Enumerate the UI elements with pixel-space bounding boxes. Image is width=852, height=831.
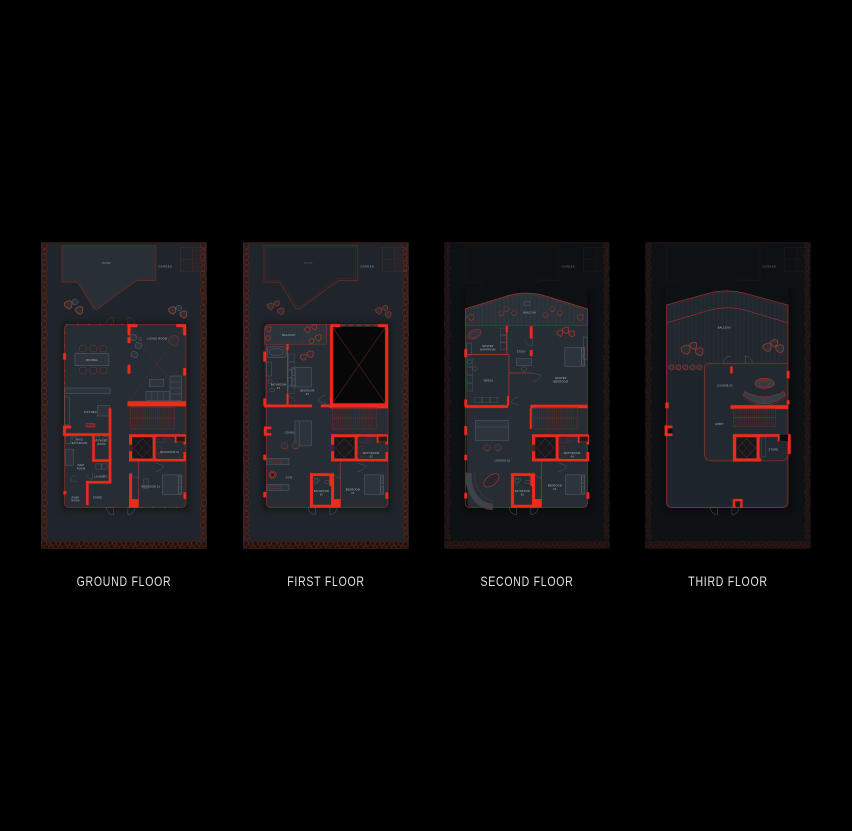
svg-text:05: 05 <box>320 495 324 497</box>
svg-text:04: 04 <box>571 456 575 459</box>
svg-text:KITCHEN: KITCHEN <box>84 411 97 414</box>
svg-text:LOUNGE 03: LOUNGE 03 <box>717 384 733 387</box>
svg-text:BEDROOM: BEDROOM <box>554 381 568 384</box>
svg-text:LAUNDRY: LAUNDRY <box>95 475 108 478</box>
svg-text:DINING: DINING <box>86 358 98 362</box>
svg-text:05: 05 <box>521 495 525 497</box>
svg-text:02: 02 <box>370 456 374 459</box>
svg-text:LOBBY: LOBBY <box>715 423 724 426</box>
svg-text:GYM: GYM <box>286 477 292 480</box>
svg-text:STUDY: STUDY <box>517 350 526 353</box>
svg-text:02: 02 <box>351 492 355 495</box>
svg-text:ROOM: ROOM <box>77 468 85 470</box>
svg-text:LOUNGE 02: LOUNGE 02 <box>495 459 511 462</box>
svg-text:03: 03 <box>306 393 310 396</box>
svg-text:POWDER: POWDER <box>96 441 108 443</box>
svg-text:STORE: STORE <box>93 497 102 499</box>
svg-text:GARDEN: GARDEN <box>562 265 576 269</box>
svg-text:BEDROOM 01: BEDROOM 01 <box>142 485 161 488</box>
svg-text:BATHROOM: BATHROOM <box>314 490 329 493</box>
svg-text:MASTER: MASTER <box>555 377 567 380</box>
svg-text:POOL: POOL <box>102 261 111 265</box>
svg-text:LIVING ROOM: LIVING ROOM <box>147 336 167 340</box>
svg-text:BALCONY: BALCONY <box>282 334 296 337</box>
svg-text:BATHROOM 01: BATHROOM 01 <box>160 451 179 454</box>
svg-text:BEDROOM: BEDROOM <box>548 484 562 487</box>
svg-text:BEDROOM: BEDROOM <box>346 488 360 491</box>
svg-text:BEDROOM: BEDROOM <box>300 390 314 393</box>
svg-text:MAID: MAID <box>78 464 85 467</box>
svg-text:MAID: MAID <box>76 439 83 442</box>
svg-text:BATHROOM: BATHROOM <box>72 442 87 445</box>
svg-text:ROOM: ROOM <box>98 444 106 446</box>
svg-text:03: 03 <box>277 388 281 390</box>
svg-text:POOL: POOL <box>304 261 313 265</box>
svg-text:GARDEN: GARDEN <box>158 265 172 269</box>
svg-text:BATHROOM: BATHROOM <box>565 452 581 455</box>
svg-text:STORE: STORE <box>769 448 779 451</box>
svg-text:DRESS: DRESS <box>484 379 494 382</box>
svg-text:BATHROOM: BATHROOM <box>515 490 530 493</box>
svg-text:ROOM: ROOM <box>71 501 79 503</box>
svg-text:BATHROOM: BATHROOM <box>481 349 496 352</box>
svg-text:GARDEN: GARDEN <box>763 265 777 269</box>
svg-text:04: 04 <box>554 488 558 491</box>
svg-text:PUMP: PUMP <box>72 497 80 499</box>
svg-text:BATHROOM: BATHROOM <box>271 383 286 386</box>
svg-text:MASTER: MASTER <box>483 345 494 348</box>
svg-text:BALCONY: BALCONY <box>718 326 732 329</box>
svg-text:BALCONY: BALCONY <box>523 312 537 315</box>
svg-text:BATHROOM: BATHROOM <box>363 452 379 455</box>
svg-text:LOUNGE: LOUNGE <box>285 431 297 434</box>
svg-text:GARDEN: GARDEN <box>360 265 374 269</box>
